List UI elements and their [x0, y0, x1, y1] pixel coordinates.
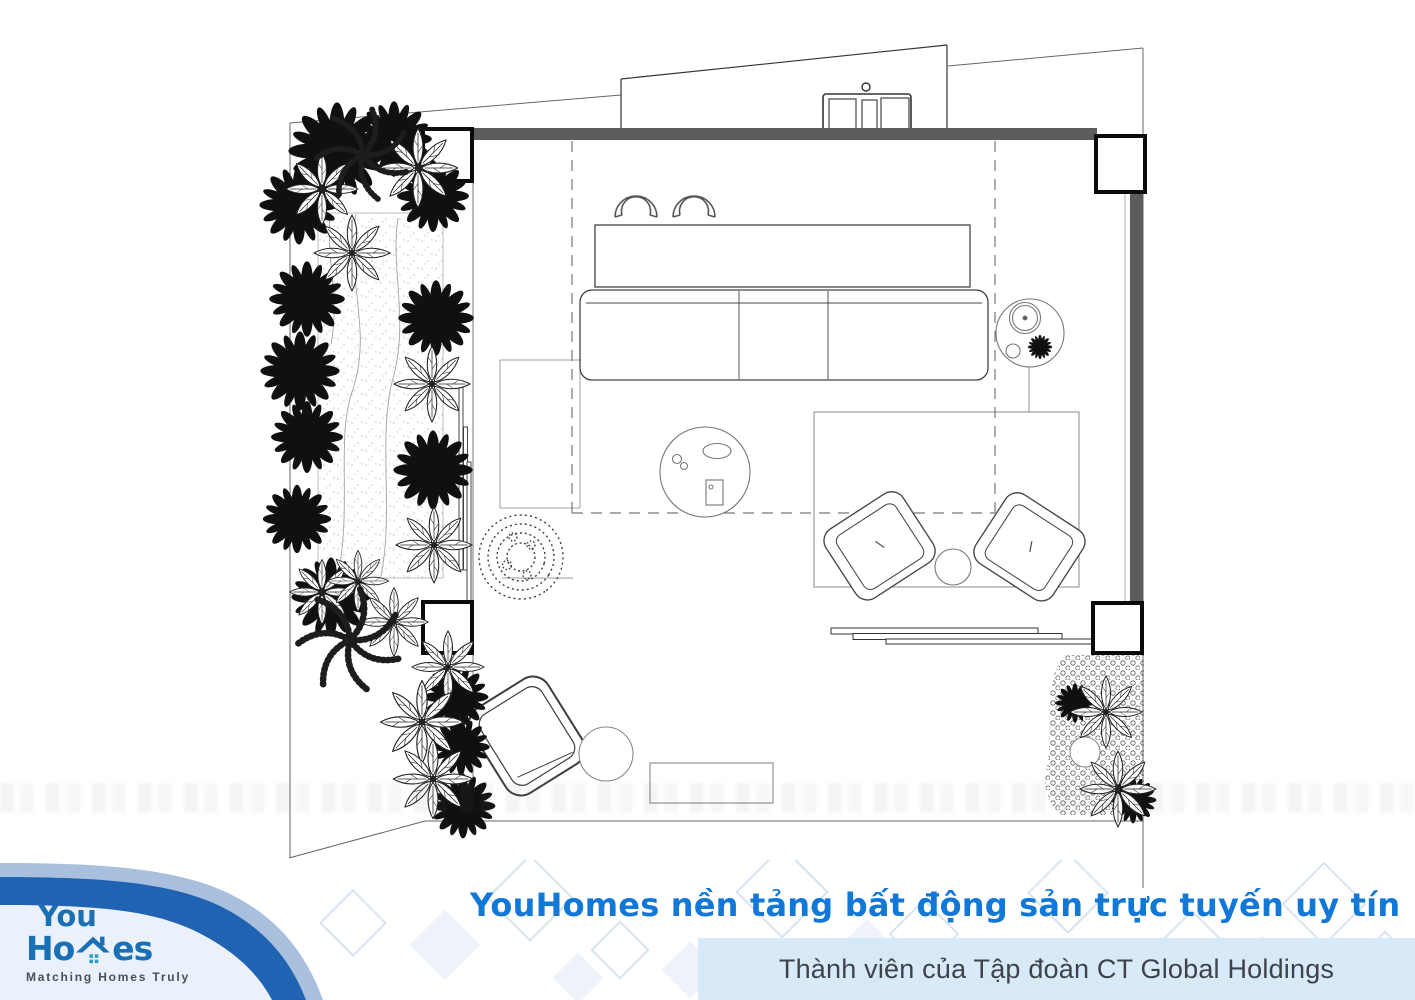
footer: Thành viên của Tập đoàn CT Global Holdin… [0, 860, 1415, 1000]
floor-plan [0, 0, 1415, 895]
structural-column [1096, 136, 1145, 192]
palmate-plant-icon [1080, 751, 1156, 827]
palmate-plant-icon [381, 681, 464, 764]
house-icon [75, 934, 111, 964]
membership-text: Thành viên của Tập đoàn CT Global Holdin… [779, 954, 1334, 985]
palm-tree-icon [263, 485, 331, 553]
stepping-stone [1070, 737, 1100, 767]
palm-tree-icon [260, 331, 339, 410]
shrub-icon [463, 499, 580, 616]
youhomes-logo: You Ho es Matching Homes Truly [26, 902, 190, 983]
palmate-plant-icon [394, 346, 470, 422]
side-table-lamp [996, 299, 1064, 412]
membership-strip: Thành viên của Tập đoàn CT Global Holdin… [698, 938, 1415, 1000]
brand-slogan: YouHomes nền tảng bất động sản trực tuyế… [470, 886, 1370, 924]
bar-counter [595, 225, 970, 287]
bar-stool [615, 196, 657, 217]
potted-flower-icon [1028, 335, 1052, 359]
coffee-table [660, 427, 750, 517]
palmate-plant-icon [393, 739, 472, 818]
palmate-plant-icon [378, 128, 457, 207]
logo-tagline: Matching Homes Truly [26, 971, 190, 983]
palmate-plant-icon [1070, 676, 1142, 748]
round-side-table [935, 549, 971, 585]
logo-line2-right: es [112, 932, 152, 965]
structural-column [1093, 603, 1142, 653]
bar-stool [673, 196, 715, 217]
palmate-plant-icon [314, 215, 390, 291]
pouf [579, 727, 633, 781]
sliding-glass-door [831, 628, 1092, 644]
rug-left [500, 360, 580, 578]
armchair [969, 487, 1091, 606]
palm-tree-icon [393, 430, 472, 509]
palm-tree-icon [398, 280, 474, 356]
palm-tree-icon [271, 401, 343, 473]
floor-plan-svg [0, 0, 1415, 895]
sofa [580, 290, 988, 380]
palmate-plant-icon [396, 507, 472, 583]
logo-line2-left: Ho [26, 932, 74, 965]
logo-line1: You [38, 902, 190, 931]
bench [650, 763, 773, 803]
